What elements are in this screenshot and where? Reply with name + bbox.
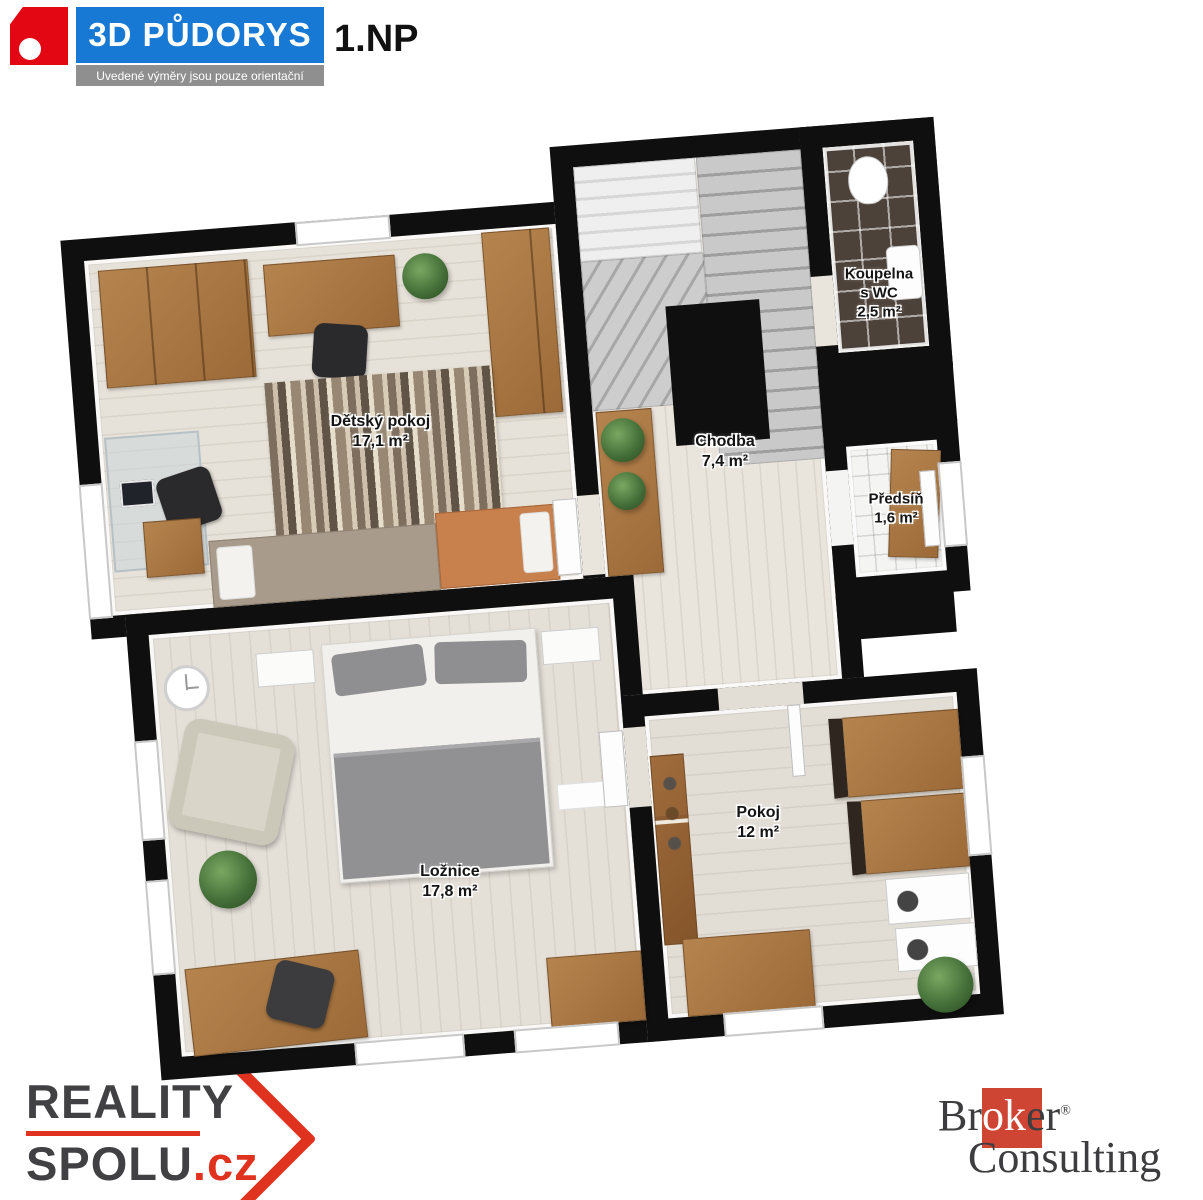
room-area: 7,4 m² (695, 452, 755, 472)
bed-blanket (333, 738, 549, 880)
room-label-detsky-pokoj: Dětský pokoj 17,1 m² (331, 412, 431, 452)
broker-logo-line1: Broker® (938, 1094, 1071, 1138)
room-name: Pokoj (736, 803, 780, 823)
logo-dot-icon (19, 38, 41, 60)
staircase-core-wall (665, 299, 770, 446)
bed-pillow (434, 640, 527, 684)
room-area: 1,6 m² (868, 509, 923, 528)
room-name: Koupelna (845, 266, 913, 285)
office-chair (311, 323, 368, 380)
bed-pillow (216, 545, 256, 601)
cz-suffix: .cz (193, 1137, 259, 1190)
room-label-pokoj: Pokoj 12 m² (736, 803, 780, 843)
wardrobe (847, 793, 970, 876)
reality-logo-line2: SPOLU.cz (26, 1140, 259, 1187)
nightstand (540, 627, 600, 665)
brand-text: 3D PŮDORYS (88, 16, 311, 54)
wardrobe (98, 259, 257, 388)
room-area: 17,1 m² (331, 432, 431, 452)
room-name: Dětský pokoj (331, 412, 431, 432)
room-name-2: s WC (845, 284, 913, 303)
reality-logo-underline (26, 1131, 200, 1136)
floor-number-label: 1.NP (334, 18, 418, 61)
reality-logo-line1: REALITY (26, 1078, 234, 1125)
wardrobe (828, 709, 964, 799)
wall-segment (818, 361, 957, 431)
nightstand (143, 518, 205, 578)
brand-banner: 3D PŮDORYS (76, 7, 324, 63)
nightstand (255, 649, 315, 687)
staircase-upper-flight (573, 158, 702, 262)
room-area: 12 m² (736, 823, 780, 843)
room-label-chodba: Chodba 7,4 m² (695, 432, 755, 472)
broker-consulting-logo: Broker® Consulting (938, 1092, 1203, 1197)
broker-logo-line2: Consulting (968, 1136, 1161, 1180)
registered-mark: ® (1060, 1103, 1071, 1118)
floor-plan: Dětský pokoj 17,1 m² Chodba 7,4 m² Koupe… (56, 117, 1004, 1083)
room-area: 2,5 m² (845, 303, 913, 322)
room-label-predsin: Předsíň 1,6 m² (868, 490, 923, 528)
3d-pudorys-logo-icon (10, 7, 68, 65)
wall-segment (836, 587, 957, 641)
spolu-text: SPOLU (26, 1137, 193, 1190)
room-name: Chodba (695, 432, 755, 452)
room-area: 17,8 m² (420, 882, 480, 902)
room-name: Předsíň (868, 490, 923, 509)
side-table (546, 950, 646, 1027)
desk (682, 929, 816, 1017)
room-label-koupelna: Koupelna s WC 2,5 m² (845, 266, 913, 322)
bed-pillow (519, 511, 554, 573)
washing-machine (885, 872, 972, 924)
room-name: Ložnice (420, 862, 480, 882)
disclaimer-bar: Uvedené výměry jsou pouze orientační (76, 65, 324, 86)
laptop (119, 479, 155, 508)
armchair (165, 716, 297, 848)
room-label-loznice: Ložnice 17,8 m² (420, 862, 480, 902)
floorplan-page: 3D PŮDORYS 1.NP Uvedené výměry jsou pouz… (0, 0, 1203, 1200)
